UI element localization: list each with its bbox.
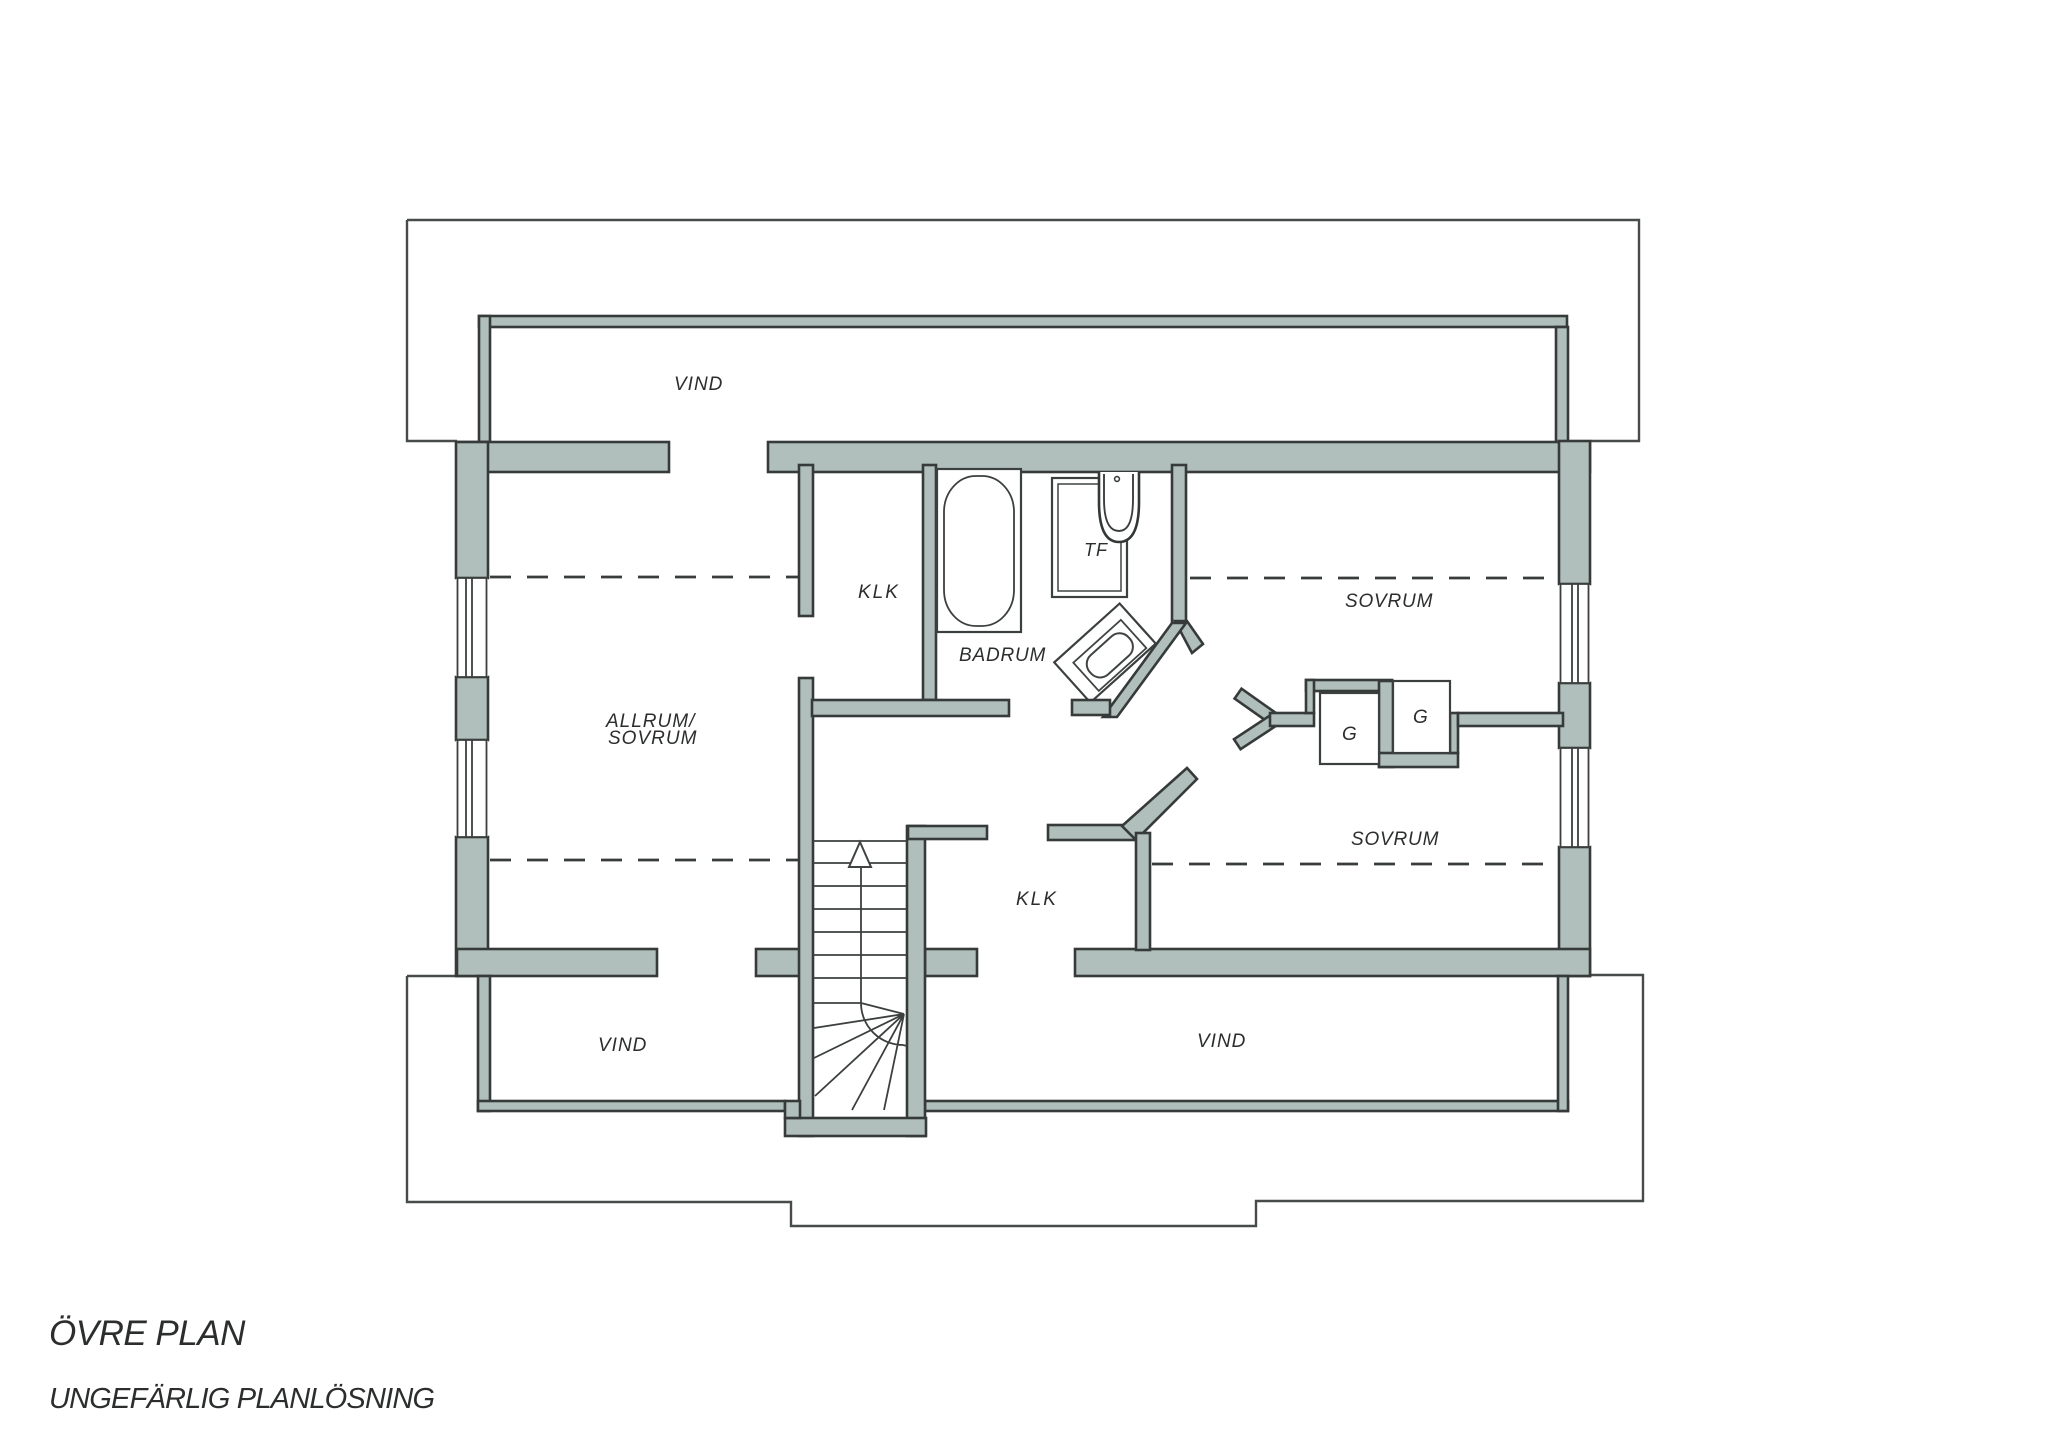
svg-text:ÖVRE PLAN: ÖVRE PLAN: [49, 1314, 246, 1353]
svg-text:VIND: VIND: [1197, 1031, 1246, 1052]
svg-text:UNGEFÄRLIG PLANLÖSNING: UNGEFÄRLIG PLANLÖSNING: [49, 1383, 435, 1415]
svg-text:G: G: [1342, 724, 1357, 745]
svg-text:KLK: KLK: [858, 582, 900, 603]
svg-text:TF: TF: [1084, 540, 1108, 560]
svg-text:SOVRUM: SOVRUM: [1345, 591, 1433, 612]
svg-text:G: G: [1413, 707, 1428, 728]
svg-text:KLK: KLK: [1016, 889, 1058, 910]
svg-text:BADRUM: BADRUM: [959, 645, 1046, 666]
svg-text:VIND: VIND: [674, 374, 723, 395]
svg-text:VIND: VIND: [598, 1035, 647, 1056]
svg-text:SOVRUM: SOVRUM: [608, 728, 697, 749]
svg-text:SOVRUM: SOVRUM: [1351, 829, 1439, 850]
